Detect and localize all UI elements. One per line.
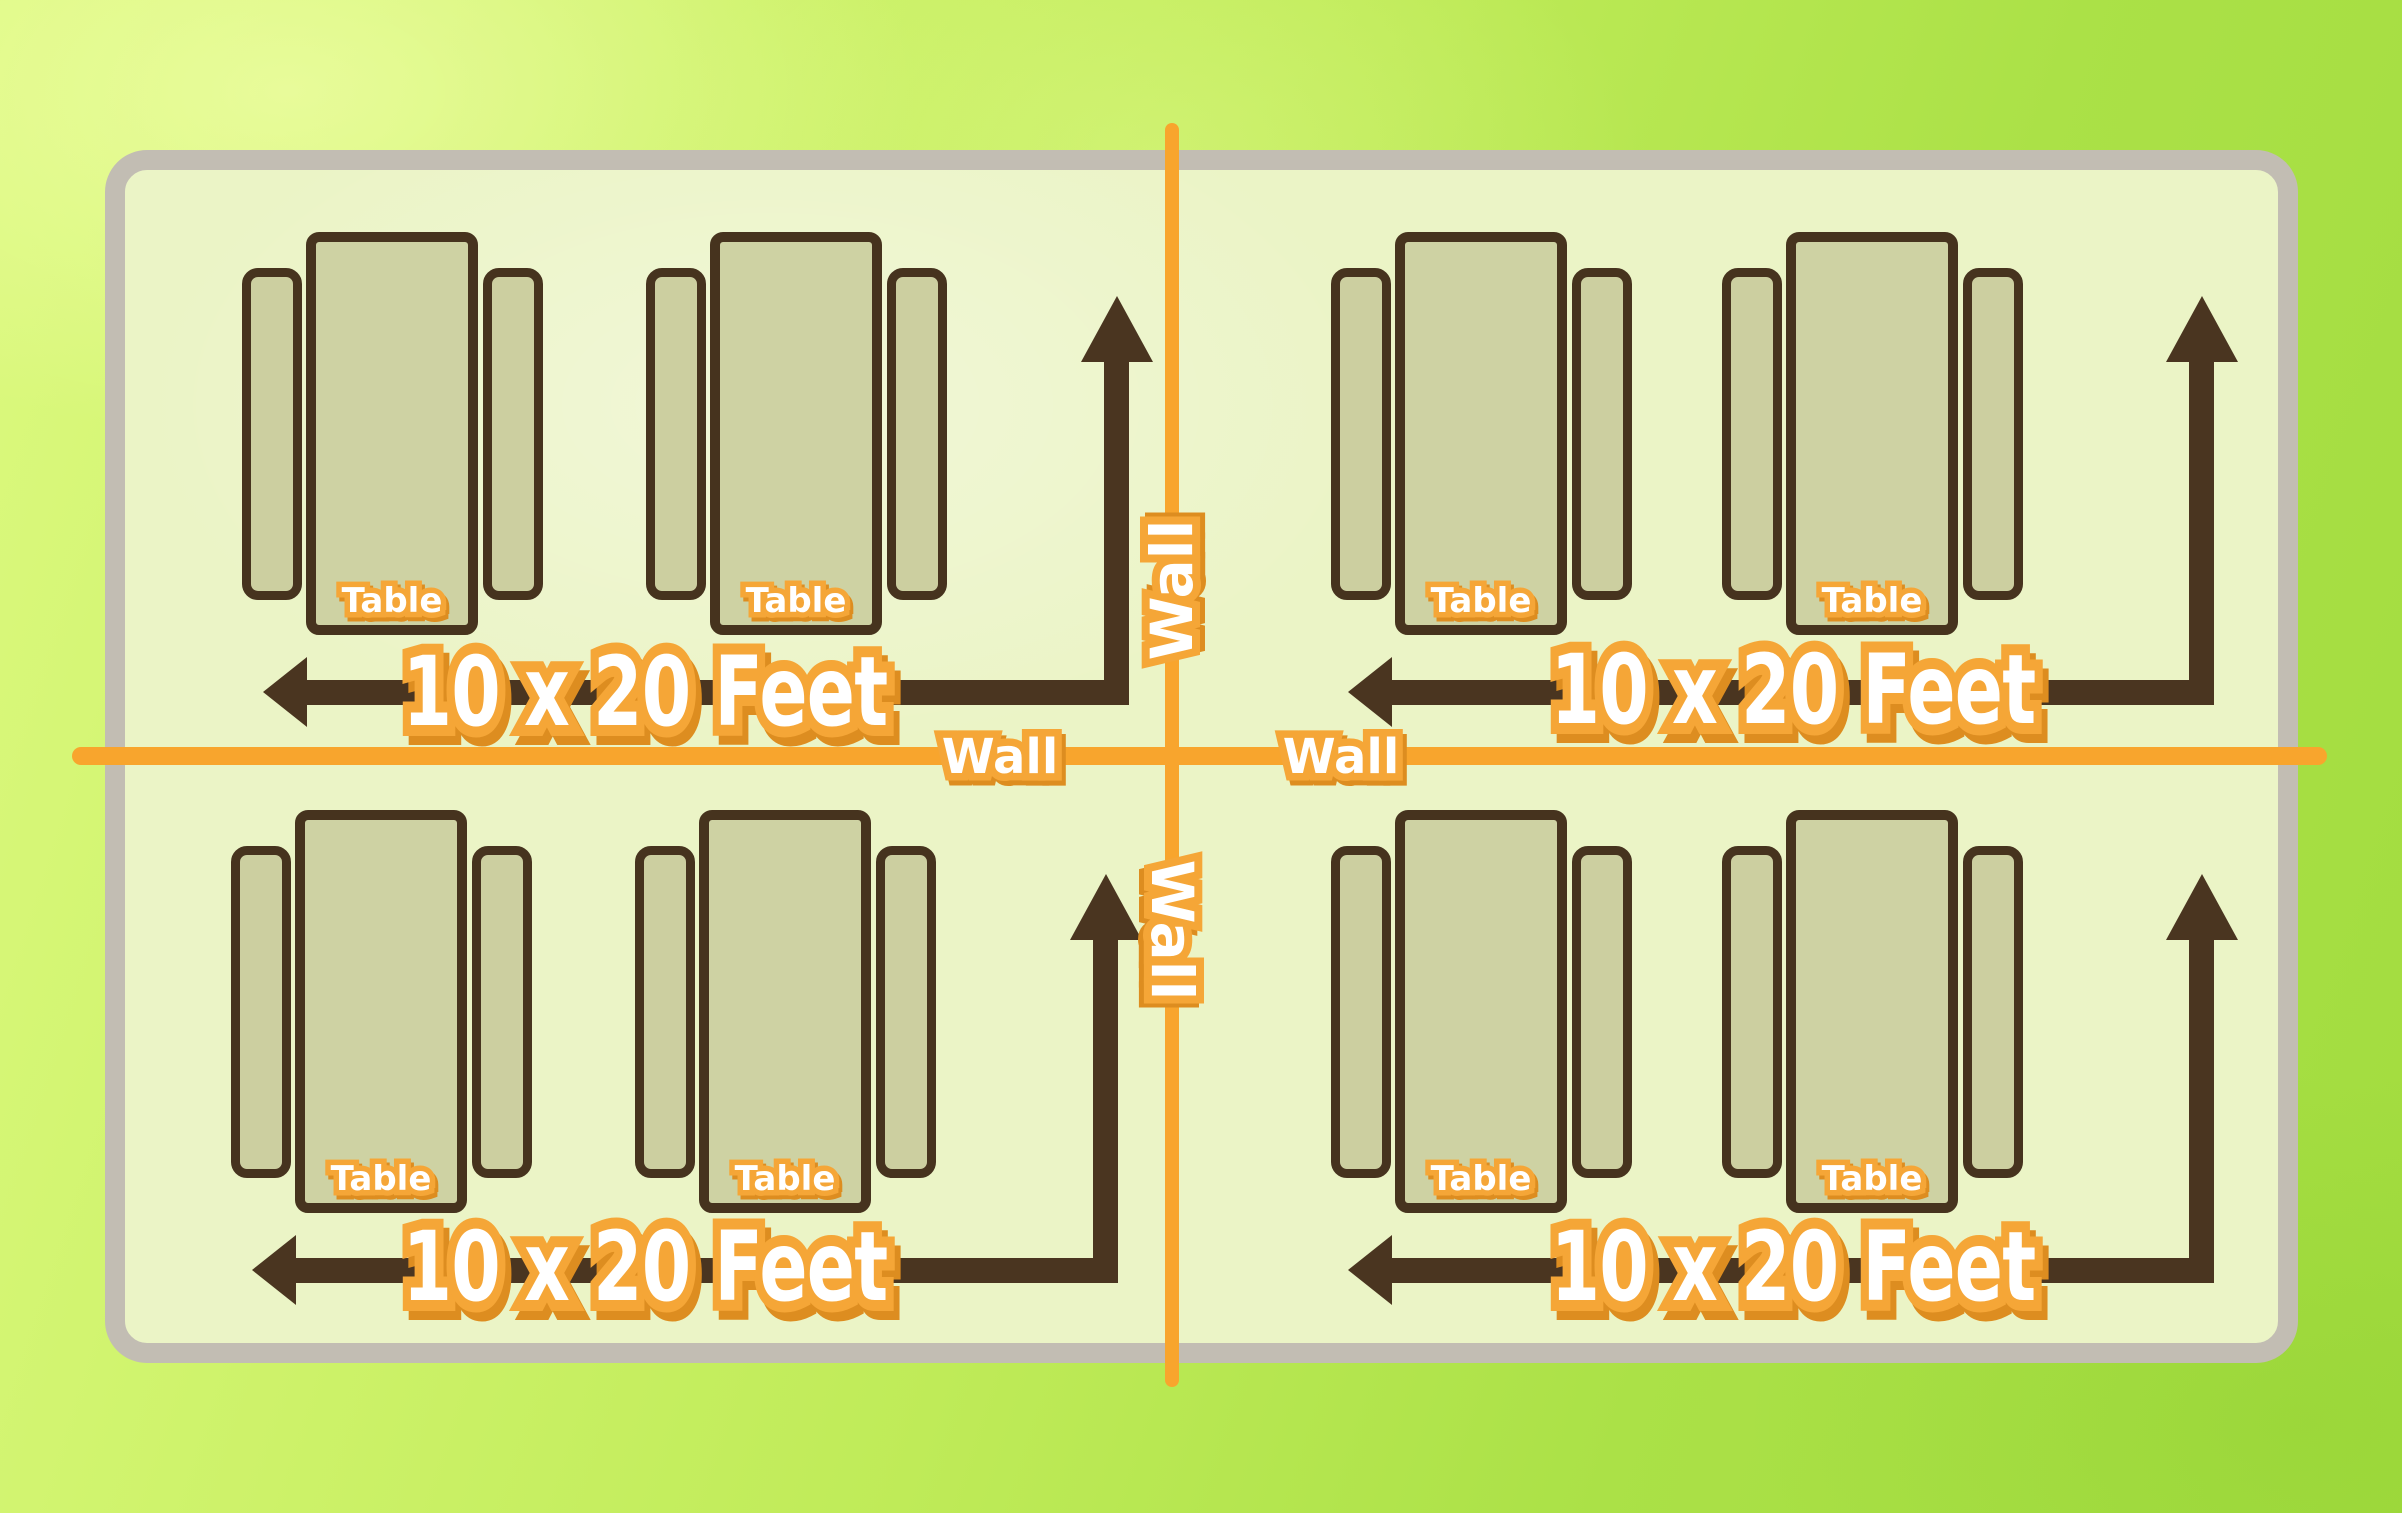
size-label-bottom-right: 10 x 20 Feet 10 x 20 Feet 10 x 20 Feet	[1551, 1219, 2036, 1315]
table-label: Table Table Table	[1822, 584, 1923, 618]
arrowhead-up-icon	[2166, 296, 2238, 362]
chair-right	[472, 846, 532, 1178]
table-label: Table Table Table	[342, 584, 443, 618]
table-group: Table Table Table	[635, 810, 936, 1213]
table-group: Table Table Table	[1722, 232, 2023, 635]
table-label: Table Table Table	[1822, 1162, 1923, 1196]
chair-left	[242, 268, 302, 600]
table-surface	[1786, 232, 1958, 635]
arrowhead-up-icon	[1081, 296, 1153, 362]
table-group: Table Table Table	[242, 232, 543, 635]
chair-right	[1963, 846, 2023, 1178]
chair-right	[483, 268, 543, 600]
table-surface	[1786, 810, 1958, 1213]
table-surface	[306, 232, 478, 635]
chair-left	[1722, 268, 1782, 600]
wall-label-vertical-lower: Wall Wall Wall	[1143, 860, 1201, 1001]
chair-left	[635, 846, 695, 1178]
arrowhead-left-icon	[1348, 1235, 1392, 1305]
wall-label-horizontal-right: Wall Wall Wall	[1283, 733, 1400, 781]
chair-right	[887, 268, 947, 600]
chair-left	[1331, 268, 1391, 600]
arrow-shaft-vertical	[1104, 360, 1129, 705]
chair-right	[1963, 268, 2023, 600]
table-surface	[699, 810, 871, 1213]
size-label-top-left: 10 x 20 Feet 10 x 20 Feet 10 x 20 Feet	[403, 644, 888, 740]
size-label-top-right: 10 x 20 Feet 10 x 20 Feet 10 x 20 Feet	[1551, 642, 2036, 738]
table-label: Table Table Table	[1431, 1162, 1532, 1196]
wall-label-horizontal-left: Wall Wall Wall	[942, 733, 1059, 781]
chair-left	[646, 268, 706, 600]
table-group: Table Table Table	[646, 232, 947, 635]
arrowhead-up-icon	[1070, 874, 1142, 940]
table-label: Table Table Table	[1431, 584, 1532, 618]
chair-left	[1331, 846, 1391, 1178]
arrow-shaft-vertical	[2189, 360, 2214, 705]
table-label: Table Table Table	[746, 584, 847, 618]
chair-left	[231, 846, 291, 1178]
table-surface	[295, 810, 467, 1213]
table-group: Table Table Table	[231, 810, 532, 1213]
table-label: Table Table Table	[331, 1162, 432, 1196]
wall-label-vertical-upper: Wall Wall Wall	[1143, 520, 1201, 661]
chair-right	[1572, 268, 1632, 600]
chair-left	[1722, 846, 1782, 1178]
table-group: Table Table Table	[1331, 232, 1632, 635]
table-label: Table Table Table	[735, 1162, 836, 1196]
table-surface	[1395, 232, 1567, 635]
table-group: Table Table Table	[1331, 810, 1632, 1213]
table-group: Table Table Table	[1722, 810, 2023, 1213]
arrow-shaft-vertical	[2189, 938, 2214, 1283]
arrow-shaft-vertical	[1093, 938, 1118, 1283]
table-surface	[1395, 810, 1567, 1213]
table-surface	[710, 232, 882, 635]
chair-right	[876, 846, 936, 1178]
arrowhead-left-icon	[1348, 657, 1392, 727]
size-label-bottom-left: 10 x 20 Feet 10 x 20 Feet 10 x 20 Feet	[403, 1219, 888, 1315]
arrowhead-up-icon	[2166, 874, 2238, 940]
arrowhead-left-icon	[252, 1235, 296, 1305]
arrowhead-left-icon	[263, 657, 307, 727]
chair-right	[1572, 846, 1632, 1178]
wall-line-vertical	[1165, 123, 1179, 1387]
floor-plan-diagram: Table Table Table Table Table Table Tabl…	[0, 0, 2402, 1513]
